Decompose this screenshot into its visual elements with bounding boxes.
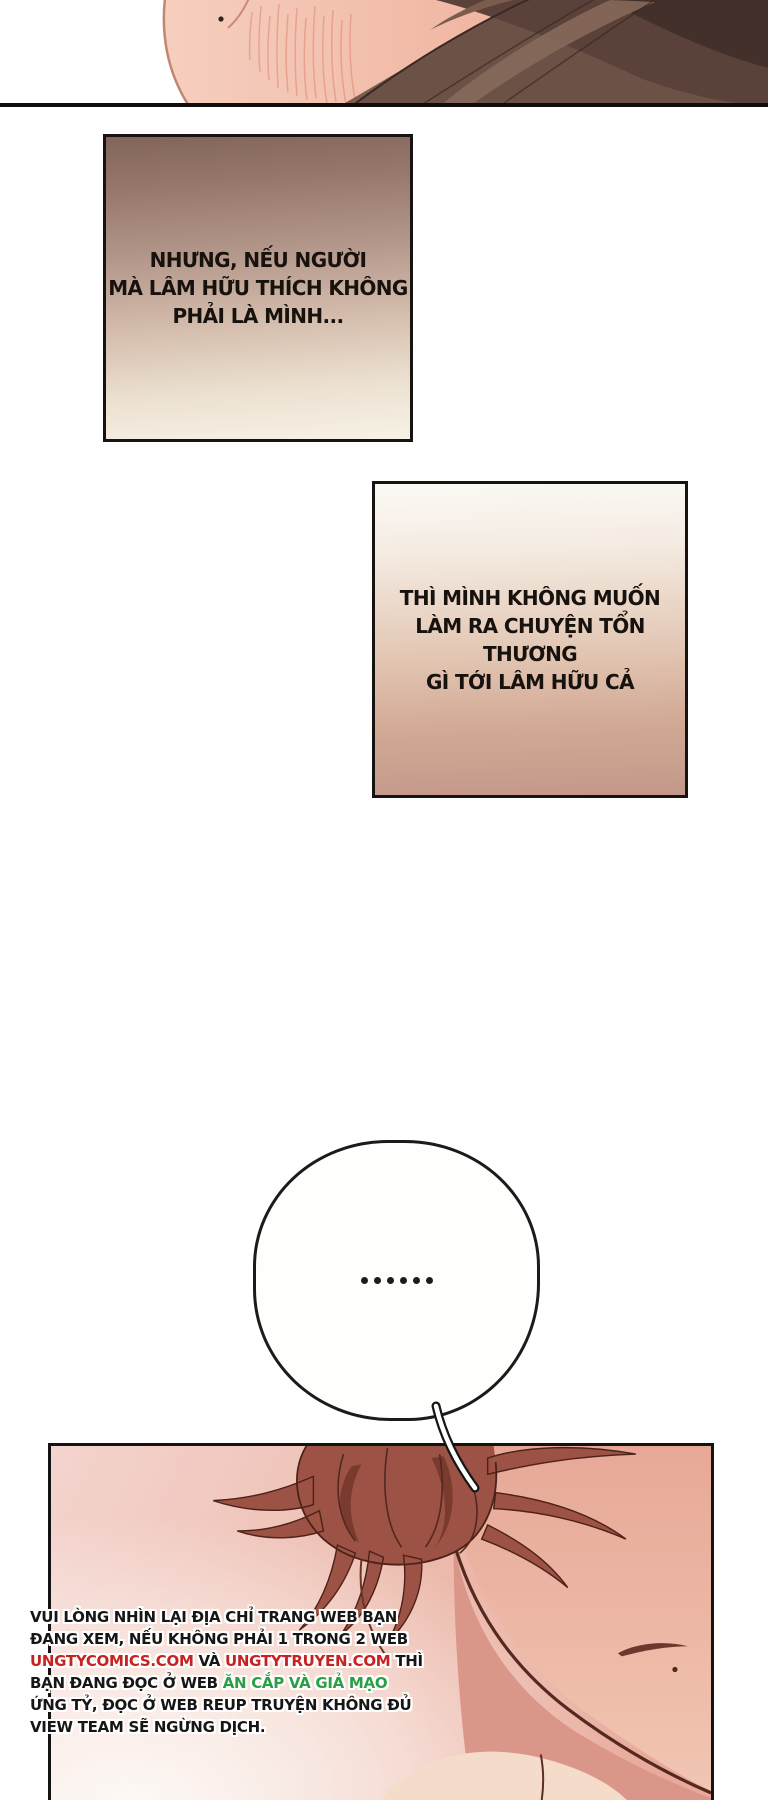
notice-text: ĂN CẮP VÀ GIẢ MẠO: [223, 1674, 388, 1692]
top-artwork-cropped-head: [0, 0, 768, 106]
caption-line: LÀM RA CHUYỆN TỔN THƯƠNG: [375, 612, 685, 668]
notice-line: VIEW TEAM SẼ NGỪNG DỊCH.: [30, 1716, 440, 1738]
mole: [218, 16, 223, 21]
caption-line: GÌ TỚI LÂM HỮU CẢ: [375, 668, 685, 696]
ellipsis-dot: [413, 1277, 420, 1284]
notice-text: VÀ: [194, 1652, 225, 1670]
caption-box-1: NHƯNG, NẾU NGƯỜI MÀ LÂM HỮU THÍCH KHÔNG …: [103, 134, 413, 442]
site-link-text: UNGTYCOMICS.COM: [30, 1652, 194, 1670]
notice-line: BẠN ĐANG ĐỌC Ở WEB ĂN CẮP VÀ GIẢ MẠO: [30, 1672, 440, 1694]
notice-text: BẠN ĐANG ĐỌC Ở WEB: [30, 1674, 223, 1692]
ellipsis-dot: [426, 1277, 433, 1284]
notice-text: VIEW TEAM SẼ NGỪNG DỊCH.: [30, 1718, 265, 1736]
caption-box-1-text: NHƯNG, NẾU NGƯỜI MÀ LÂM HỮU THÍCH KHÔNG …: [106, 246, 410, 330]
notice-text: THÌ: [390, 1652, 422, 1670]
notice-line: ỨNG TỶ, ĐỌC Ở WEB REUP TRUYỆN KHÔNG ĐỦ: [30, 1694, 440, 1716]
caption-line: THÌ MÌNH KHÔNG MUỐN: [375, 584, 685, 612]
bubble-dots: [358, 1277, 436, 1284]
caption-box-2-text: THÌ MÌNH KHÔNG MUỐN LÀM RA CHUYỆN TỔN TH…: [375, 584, 685, 696]
notice-text: ỨNG TỶ, ĐỌC Ở WEB REUP TRUYỆN KHÔNG ĐỦ: [30, 1696, 411, 1714]
ellipsis-dot: [374, 1277, 381, 1284]
caption-line: MÀ LÂM HỮU THÍCH KHÔNG: [106, 274, 410, 302]
notice-line: UNGTYCOMICS.COM VÀ UNGTYTRUYEN.COM THÌ: [30, 1650, 440, 1672]
ellipsis-dot: [387, 1277, 394, 1284]
ellipsis-dot: [400, 1277, 407, 1284]
notice-text: VUI LÒNG NHÌN LẠI ĐỊA CHỈ TRANG WEB BẠN: [30, 1608, 397, 1626]
ellipsis-dot: [361, 1277, 368, 1284]
panel-divider-line: [0, 103, 768, 107]
caption-line: PHẢI LÀ MÌNH...: [106, 302, 410, 330]
caption-line: NHƯNG, NẾU NGƯỜI: [106, 246, 410, 274]
site-link-text: UNGTYTRUYEN.COM: [225, 1652, 390, 1670]
caption-box-2: THÌ MÌNH KHÔNG MUỐN LÀM RA CHUYỆN TỔN TH…: [372, 481, 688, 798]
piracy-notice: VUI LÒNG NHÌN LẠI ĐỊA CHỈ TRANG WEB BẠNĐ…: [30, 1606, 440, 1738]
notice-line: ĐANG XEM, NẾU KHÔNG PHẢI 1 TRONG 2 WEB: [30, 1628, 440, 1650]
notice-text: ĐANG XEM, NẾU KHÔNG PHẢI 1 TRONG 2 WEB: [30, 1630, 408, 1648]
speech-bubble: [253, 1140, 540, 1421]
speech-bubble-tail: [416, 1398, 506, 1508]
comic-page: NHƯNG, NẾU NGƯỜI MÀ LÂM HỮU THÍCH KHÔNG …: [0, 0, 768, 1800]
notice-line: VUI LÒNG NHÌN LẠI ĐỊA CHỈ TRANG WEB BẠN: [30, 1606, 440, 1628]
cheek-mole: [672, 1667, 677, 1672]
